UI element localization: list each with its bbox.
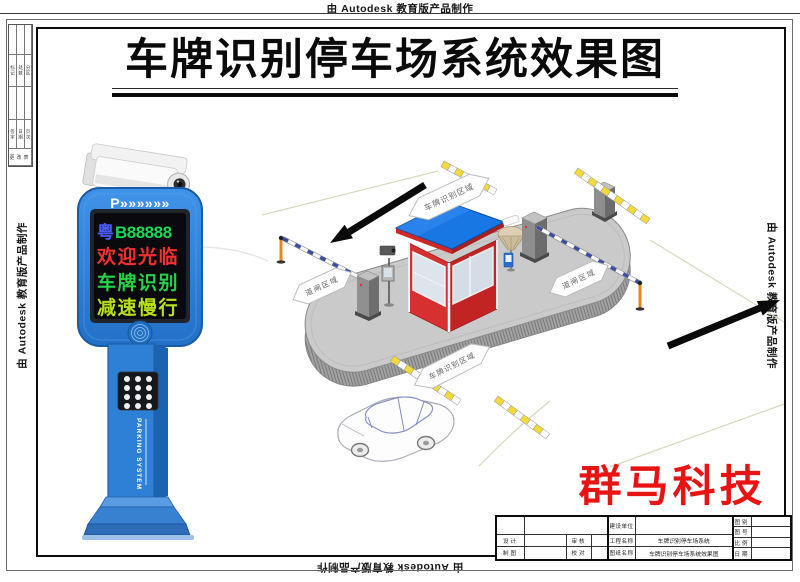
title-block: 设计 审核 制图 校对 建设单位 工程名称 车牌识别停车场系统 图纸名称 车牌识… bbox=[495, 515, 792, 561]
tb-label: 图号 bbox=[734, 527, 752, 538]
arrow-out bbox=[668, 300, 780, 346]
tb-label: 图纸名称 bbox=[609, 547, 636, 559]
tb-label: 比例 bbox=[734, 538, 752, 548]
tb-label: 校对 bbox=[567, 547, 592, 559]
speaker bbox=[128, 321, 152, 345]
tb-label: 设计 bbox=[497, 535, 525, 547]
parking-kiosk: P»»»»»» 粤 B88888 欢迎光临 车牌识别 减速慢行 bbox=[78, 143, 202, 540]
brand-text: 群马科技 bbox=[565, 462, 780, 512]
cable-line bbox=[201, 247, 268, 261]
led-plate-number: B88888 bbox=[115, 223, 172, 242]
speed-bump bbox=[494, 396, 550, 439]
car bbox=[338, 397, 454, 461]
gate-led bbox=[360, 284, 362, 286]
tb-label: 日期 bbox=[734, 548, 752, 559]
tb-label: 审核 bbox=[567, 535, 592, 547]
tb-label: 工程名称 bbox=[609, 535, 636, 547]
led-plate-region: 粤 bbox=[97, 222, 114, 242]
led-line2: 欢迎光临 bbox=[96, 245, 179, 268]
camera-lens bbox=[392, 249, 396, 253]
kiosk-logo: P»»»»»» bbox=[110, 195, 170, 211]
project-name: 车牌识别停车场系统 bbox=[636, 535, 733, 547]
kiosk-side-label: PARKING SYSTEM bbox=[135, 418, 142, 490]
gate-led bbox=[525, 226, 527, 228]
tb-label: 制图 bbox=[497, 547, 525, 559]
guard-booth bbox=[396, 202, 504, 332]
led-line4: 减速慢行 bbox=[97, 296, 179, 319]
kiosk-column bbox=[108, 344, 154, 500]
drawing-sheet: 由 Autodesk 教育版产品制作 由 Autodesk 教育版产品制作 由 … bbox=[0, 0, 800, 582]
sheet-name: 车牌识别停车场系统效果图 bbox=[636, 547, 733, 559]
led-line3: 车牌识别 bbox=[97, 271, 179, 294]
tb-label: 建设单位 bbox=[609, 517, 636, 535]
tb-label: 图别 bbox=[734, 517, 752, 527]
